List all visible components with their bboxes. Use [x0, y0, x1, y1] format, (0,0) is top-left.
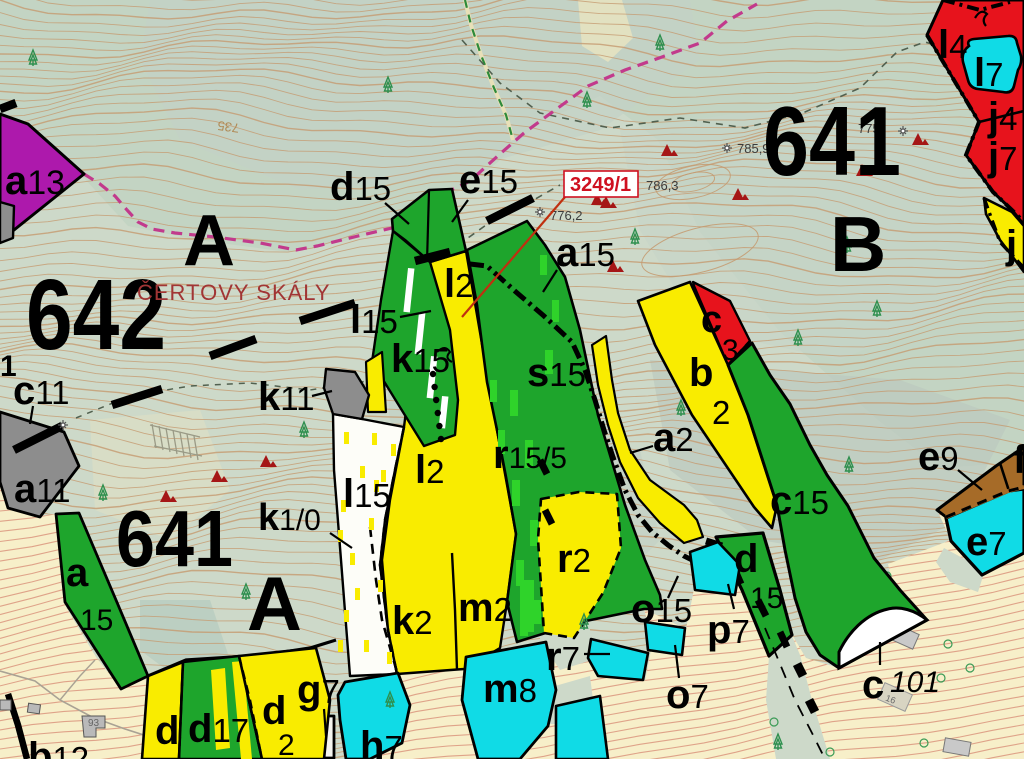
svg-text:l4: l4	[938, 23, 967, 67]
svg-text:k15: k15	[391, 337, 450, 381]
svg-text:f: f	[1013, 438, 1024, 482]
svg-text:786,3: 786,3	[646, 178, 679, 193]
svg-text:3: 3	[722, 334, 739, 367]
svg-text:j: j	[1005, 223, 1017, 267]
svg-text:e9: e9	[918, 435, 959, 479]
svg-text:641: 641	[116, 494, 233, 583]
svg-text:l2: l2	[444, 262, 473, 306]
svg-text:m8: m8	[483, 667, 537, 711]
svg-text:g7: g7	[297, 668, 340, 712]
svg-text:d: d	[734, 537, 758, 581]
svg-text:735: 735	[217, 118, 241, 136]
svg-text:3249/1: 3249/1	[570, 174, 631, 196]
svg-text:k1/0: k1/0	[258, 497, 321, 539]
svg-text:l2: l2	[415, 448, 444, 492]
svg-text:p7: p7	[707, 608, 750, 652]
svg-text:c11: c11	[13, 369, 70, 413]
svg-text:d17: d17	[188, 707, 249, 751]
svg-text:A: A	[183, 201, 235, 281]
svg-text:641: 641	[763, 86, 901, 196]
svg-text:a: a	[66, 551, 89, 595]
svg-text:j4: j4	[987, 95, 1017, 139]
svg-text:15: 15	[80, 604, 113, 637]
svg-text:d: d	[262, 689, 286, 733]
svg-text:1: 1	[0, 350, 17, 383]
svg-text:a15: a15	[556, 231, 615, 275]
svg-text:c: c	[862, 663, 884, 707]
svg-text:ČERTOVY SKÁLY: ČERTOVY SKÁLY	[137, 280, 331, 305]
svg-text:k11: k11	[258, 375, 315, 419]
svg-text:d: d	[155, 709, 179, 753]
svg-text:o7: o7	[666, 673, 709, 717]
svg-text:h7: h7	[360, 724, 403, 759]
svg-text:93: 93	[88, 718, 100, 729]
svg-text:a13: a13	[5, 159, 65, 203]
svg-text:A: A	[247, 562, 302, 647]
svg-text:s15: s15	[527, 351, 586, 395]
svg-text:b: b	[689, 351, 713, 395]
svg-text:e7: e7	[966, 520, 1007, 564]
svg-text:j7: j7	[987, 135, 1017, 179]
svg-text:B: B	[830, 200, 886, 288]
svg-text:a2: a2	[653, 416, 694, 460]
svg-text:101: 101	[890, 666, 940, 699]
svg-text:r7: r7	[546, 635, 580, 679]
svg-text:c15: c15	[770, 479, 829, 523]
svg-text:2: 2	[278, 729, 295, 759]
svg-text:642: 642	[26, 259, 166, 371]
svg-text:c: c	[701, 299, 722, 341]
svg-text:2: 2	[712, 394, 730, 431]
svg-text:r2: r2	[557, 537, 591, 581]
svg-text:k2: k2	[392, 599, 433, 643]
svg-text:15: 15	[750, 582, 783, 615]
svg-text:l15: l15	[343, 472, 391, 516]
svg-text:e15: e15	[459, 158, 518, 202]
svg-text:a11: a11	[14, 467, 71, 511]
svg-text:l7: l7	[974, 51, 1003, 95]
svg-text:o15: o15	[631, 587, 692, 631]
svg-text:l15: l15	[350, 298, 398, 342]
svg-text:m2: m2	[458, 586, 512, 630]
svg-text:d15: d15	[330, 165, 391, 209]
